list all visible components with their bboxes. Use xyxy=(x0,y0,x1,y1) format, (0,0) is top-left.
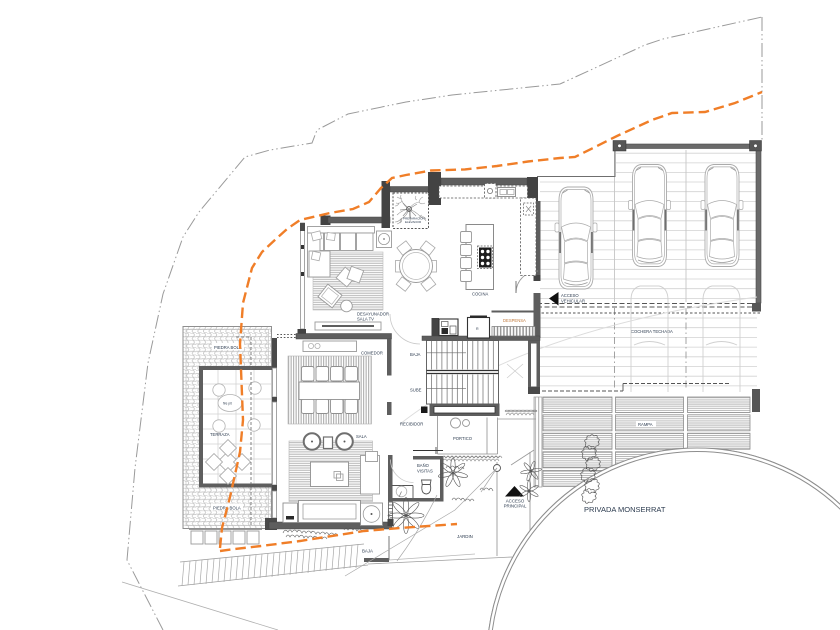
svg-text:SALA: SALA xyxy=(356,434,367,439)
svg-text:BAÑO: BAÑO xyxy=(417,463,430,468)
svg-text:BAJA: BAJA xyxy=(362,549,373,554)
svg-text:RECIBIDOR: RECIBIDOR xyxy=(400,422,423,427)
svg-text:RAMPA: RAMPA xyxy=(638,422,653,427)
svg-text:PORTICO: PORTICO xyxy=(453,436,473,441)
svg-text:COCINA: COCINA xyxy=(472,292,488,297)
svg-text:SALA TV: SALA TV xyxy=(357,317,374,322)
svg-text:ELEVADOR: ELEVADOR xyxy=(405,220,422,224)
svg-text:PIEDRA BOLA: PIEDRA BOLA xyxy=(214,345,242,350)
svg-text:JARDIN: JARDIN xyxy=(457,534,473,539)
svg-text:TERRAZA: TERRAZA xyxy=(210,432,230,437)
svg-text:R: R xyxy=(476,327,479,331)
svg-text:PRINCIPAL: PRINCIPAL xyxy=(504,504,527,509)
svg-text:VISITAS: VISITAS xyxy=(417,469,433,474)
svg-text:BAJA: BAJA xyxy=(410,352,421,357)
svg-text:DESPENSA: DESPENSA xyxy=(503,318,526,323)
svg-text:SUBE: SUBE xyxy=(410,388,422,393)
svg-text:VEHICULAR: VEHICULAR xyxy=(561,299,585,304)
svg-text:fire pit: fire pit xyxy=(223,402,232,406)
svg-text:PRIVADA MONSERRAT: PRIVADA MONSERRAT xyxy=(584,505,666,514)
svg-text:COMEDOR: COMEDOR xyxy=(361,351,383,356)
svg-text:ACCESO: ACCESO xyxy=(561,293,579,298)
svg-text:COCHERA TECHADA: COCHERA TECHADA xyxy=(631,329,673,334)
